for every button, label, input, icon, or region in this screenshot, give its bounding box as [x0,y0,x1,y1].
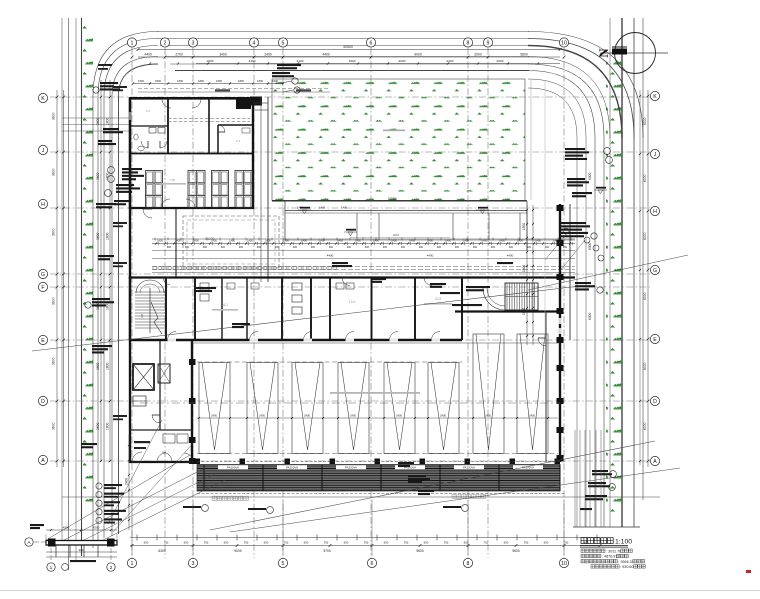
svg-text:2400: 2400 [447,59,454,63]
svg-text:900: 900 [257,246,262,249]
svg-text:1400: 1400 [341,205,347,209]
svg-text:E: E [653,337,657,343]
svg-text:900: 900 [424,540,429,544]
svg-text:5: 5 [282,40,285,46]
svg-text:6000: 6000 [643,422,647,430]
svg-text:900: 900 [384,540,389,544]
svg-text:A: A [653,459,657,465]
svg-text:1400: 1400 [499,239,505,243]
svg-text:1400: 1400 [445,239,451,243]
svg-text:6: 6 [370,40,373,46]
svg-text:5: 5 [282,561,285,567]
svg-text:750: 750 [524,540,529,544]
svg-text:1800: 1800 [177,79,183,83]
svg-text:900: 900 [347,246,352,249]
svg-text:2000: 2000 [474,53,482,57]
svg-text:3600: 3600 [52,357,56,365]
svg-text:E: E [41,338,45,344]
svg-text:1400: 1400 [265,239,271,243]
svg-text:900: 900 [79,548,84,552]
svg-text:F: F [41,285,44,291]
svg-text:2000: 2000 [399,59,406,63]
svg-text:8: 8 [467,561,470,567]
svg-text:9.4: 9.4 [236,139,241,143]
svg-text:3600: 3600 [52,297,56,305]
svg-text:900: 900 [329,246,334,249]
svg-text:6000: 6000 [643,174,647,182]
svg-text:1400: 1400 [481,239,487,243]
svg-text:PA200VA: PA200VA [463,466,475,470]
svg-text:H: H [653,209,657,215]
svg-text:PA200VA: PA200VA [286,466,298,470]
svg-text:1800: 1800 [155,79,161,83]
svg-text:UP: UP [140,314,144,318]
svg-text:2400: 2400 [396,413,402,417]
svg-text:1400: 1400 [391,239,397,243]
svg-text:G: G [653,268,657,274]
svg-text:900: 900 [437,246,442,249]
svg-text:750: 750 [404,540,409,544]
svg-text:6000: 6000 [588,312,592,320]
svg-text:3400: 3400 [219,53,227,57]
svg-text:9600: 9600 [416,549,424,553]
svg-text:6: 6 [371,561,374,567]
svg-text:3600: 3600 [52,168,56,176]
svg-text:900: 900 [401,246,406,249]
svg-text:J: J [42,148,45,154]
svg-text:: 4876.91: : 4876.91 [602,555,617,559]
svg-text:1400: 1400 [355,239,361,243]
svg-text:2400: 2400 [125,478,129,485]
svg-text:1400: 1400 [229,239,235,243]
svg-text:9700: 9700 [323,549,331,553]
svg-text:1800: 1800 [216,79,222,83]
svg-text:1400: 1400 [283,239,289,243]
svg-text:900: 900 [203,246,208,249]
svg-text:2000: 2000 [497,59,504,63]
svg-text:900: 900 [239,246,244,249]
svg-text:3600: 3600 [52,422,56,430]
svg-text:750: 750 [204,540,209,544]
svg-text:40500: 40500 [343,45,353,49]
svg-text:750: 750 [484,540,489,544]
svg-text:4: 4 [253,40,256,46]
svg-text:750: 750 [244,540,249,544]
svg-text:1800: 1800 [272,79,278,83]
svg-text:900: 900 [144,540,149,544]
svg-text:D: D [653,399,657,405]
svg-text:900: 900 [473,246,478,249]
svg-text:1400: 1400 [517,239,523,243]
svg-text:9.4: 9.4 [146,109,151,113]
svg-text:1400: 1400 [319,205,325,209]
svg-text:2400: 2400 [350,413,356,417]
svg-text:1400: 1400 [247,239,253,243]
svg-text:2400: 2400 [485,413,491,417]
svg-text:4400: 4400 [507,254,514,258]
svg-text:2400: 2400 [211,413,217,417]
svg-text:7.68: 7.68 [169,178,175,182]
svg-text:900: 900 [311,246,316,249]
svg-text:2400: 2400 [249,59,256,63]
svg-text:: 3946.31: : 3946.31 [618,560,633,564]
svg-text:4500: 4500 [63,526,70,530]
svg-text:PA200VA: PA200VA [227,466,239,470]
svg-text:1500: 1500 [522,265,526,272]
svg-text:PA200VA: PA200VA [345,466,357,470]
svg-text:1800: 1800 [257,79,263,83]
svg-text:2400: 2400 [259,413,265,417]
svg-text:1800: 1800 [198,79,204,83]
svg-text:750: 750 [444,540,449,544]
svg-text:36.2: 36.2 [222,303,229,307]
svg-text:900: 900 [527,246,532,249]
svg-text:1500: 1500 [522,223,526,230]
svg-text:K: K [653,94,657,100]
svg-text:42.8: 42.8 [435,297,441,301]
svg-text:C1230: C1230 [205,237,215,241]
svg-text:4400: 4400 [322,53,330,57]
svg-text:900: 900 [455,246,460,249]
svg-text:G: G [41,272,45,278]
svg-text:1400: 1400 [427,239,433,243]
svg-text:900: 900 [224,540,229,544]
svg-text:750: 750 [324,540,329,544]
svg-text:2400: 2400 [264,53,272,57]
svg-text:900: 900 [491,246,496,249]
svg-text:1800: 1800 [138,79,144,83]
svg-text:900: 900 [293,246,298,249]
svg-text:3600: 3600 [96,422,100,430]
svg-text:: 3011.70: : 3011.70 [606,550,621,554]
svg-text:6000: 6000 [588,172,592,180]
svg-text:900: 900 [545,246,550,249]
svg-text:10: 10 [561,561,567,567]
svg-text:6000: 6000 [643,232,647,240]
svg-text:3: 3 [192,40,195,46]
svg-text:31500: 31500 [388,196,397,200]
svg-text:: 930.60: : 930.60 [620,565,633,569]
svg-text:5800: 5800 [520,53,528,57]
svg-text:3600: 3600 [96,362,100,370]
svg-text:1800: 1800 [238,79,244,83]
svg-text:900: 900 [563,246,568,249]
svg-text:H: H [41,202,45,208]
svg-text:1400: 1400 [301,239,307,243]
svg-text:750: 750 [284,540,289,544]
svg-text:3600: 3600 [96,117,100,125]
svg-text:3600: 3600 [52,228,56,236]
svg-text:10: 10 [561,40,567,46]
svg-text:900: 900 [509,246,514,249]
svg-text:1400: 1400 [157,239,163,243]
svg-text:1500: 1500 [522,308,526,315]
svg-text:9000: 9000 [234,549,242,553]
svg-text:900: 900 [344,540,349,544]
svg-text:1: 1 [50,565,53,571]
svg-text:900: 900 [419,246,424,249]
svg-text:1400: 1400 [373,239,379,243]
svg-text:1400: 1400 [337,239,343,243]
svg-text:3600: 3600 [96,172,100,180]
svg-text:3600: 3600 [52,112,56,120]
svg-text:2400: 2400 [529,413,535,417]
svg-text:1800: 1800 [106,232,110,240]
svg-text:6000: 6000 [588,242,592,250]
svg-text:1400: 1400 [463,239,469,243]
svg-text:9600: 9600 [512,549,520,553]
svg-text:1400: 1400 [319,239,325,243]
svg-text:750: 750 [364,540,369,544]
svg-text:1800: 1800 [106,302,110,310]
svg-text:D: D [41,399,45,405]
svg-text:1800: 1800 [106,117,110,125]
svg-text:2010: 2010 [393,233,400,237]
svg-text:2700: 2700 [175,53,183,57]
svg-text:1400: 1400 [409,239,415,243]
svg-text:900: 900 [264,540,269,544]
svg-text:9000: 9000 [414,53,422,57]
svg-text:900: 900 [504,540,509,544]
svg-text:4400: 4400 [327,254,334,258]
svg-text:900: 900 [304,540,309,544]
svg-text:6000: 6000 [643,292,647,300]
svg-text:6000: 6000 [643,362,647,370]
svg-text:6300: 6300 [158,549,166,553]
svg-text:2400: 2400 [304,413,310,417]
svg-text:13.6: 13.6 [349,300,355,304]
svg-text:750: 750 [564,540,569,544]
svg-text:2: 2 [110,565,113,571]
svg-text:3600: 3600 [96,232,100,240]
svg-text:1800: 1800 [106,422,110,430]
svg-text:750: 750 [164,540,169,544]
svg-text:K: K [41,96,45,102]
svg-text:900: 900 [184,540,189,544]
svg-text:1800: 1800 [106,362,110,370]
svg-text:2400: 2400 [297,59,304,63]
svg-text:1: 1 [131,40,134,46]
svg-text:1400: 1400 [535,239,541,243]
svg-text:2: 2 [164,40,167,46]
svg-text:4500: 4500 [93,526,100,530]
svg-text:900: 900 [365,246,370,249]
svg-text:1400: 1400 [193,239,199,243]
svg-text:1:100: 1:100 [615,539,632,546]
svg-text:8: 8 [467,40,470,46]
svg-text:3: 3 [192,561,195,567]
svg-text:900: 900 [221,246,226,249]
svg-text:900: 900 [544,540,549,544]
svg-text:4400: 4400 [144,53,152,57]
svg-text:1: 1 [131,561,134,567]
svg-text:6000: 6000 [643,117,647,125]
svg-text:J: J [654,152,657,158]
svg-text:900: 900 [383,246,388,249]
svg-text:A: A [41,458,45,464]
svg-text:4400: 4400 [427,254,434,258]
svg-text:900: 900 [185,246,190,249]
svg-text:2400: 2400 [440,413,446,417]
svg-text:1800: 1800 [207,59,214,63]
svg-text:9: 9 [487,40,490,46]
svg-text:N: N [596,48,611,58]
svg-text:900: 900 [167,246,172,249]
svg-text:1800: 1800 [349,59,356,63]
